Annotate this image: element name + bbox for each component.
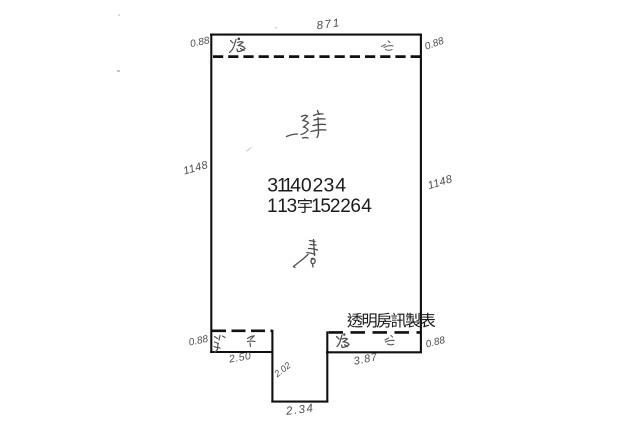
svg-text:113152264: 113152264	[267, 196, 372, 217]
svg-text:31140234: 31140234	[267, 175, 346, 197]
